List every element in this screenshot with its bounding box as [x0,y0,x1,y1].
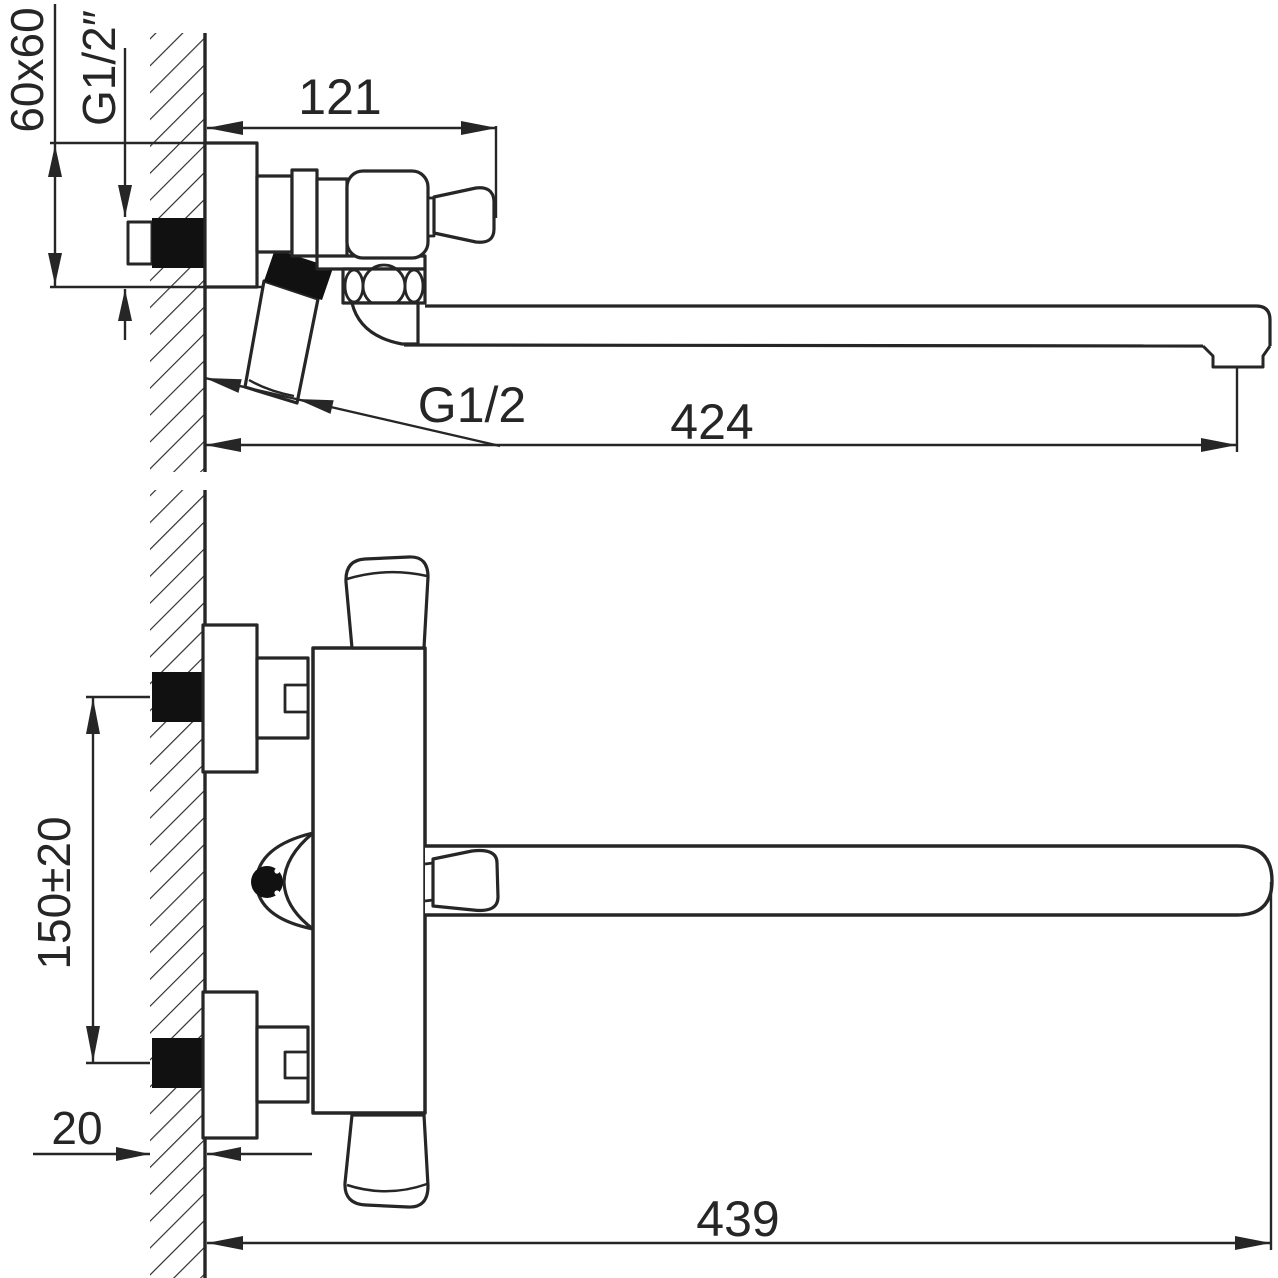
spout-front [425,846,1272,915]
lever-handle-side [434,188,494,242]
faucet-body-front [313,648,425,1113]
shower-outlet-front-inner [284,833,313,929]
front-view [33,490,1272,1278]
connector-stub-upper [285,685,308,712]
dim-label-spout-reach: 424 [642,397,782,447]
spout-joint [352,303,418,344]
spout-aerator [1203,346,1270,367]
dim-label-overall-length: 439 [668,1194,808,1244]
dim-label-inlet-thread: G1/2″ [73,0,125,143]
spout-bottom-edge [404,345,1203,346]
eccentric-fitting-lower [152,1038,203,1088]
dim-label-wall-thickness: 20 [22,1102,132,1150]
flange-lower [203,992,257,1138]
highlight-dot-1 [274,868,279,873]
handle-top [346,557,428,648]
dim-label-wall-to-handle: 121 [270,72,410,122]
front-view-arrowheads [86,698,1271,1250]
body-nut [292,170,317,256]
dim-label-inlet-spacing: 150±20 [28,768,80,1018]
flange-upper [203,625,257,772]
wall-plate [205,143,257,287]
connector-stub-lower [285,1052,308,1078]
inlet-pipe-stub [128,222,152,264]
cartridge-cap [347,171,428,258]
front-view-dimensions [33,697,1271,1250]
lever-knob-front [433,851,498,911]
highlight-dot-2 [274,890,279,895]
dim-label-plate-size: 60x60 [1,0,53,145]
spout-nut [343,269,425,303]
wall-hatch-bottom [150,490,205,1278]
handle-bottom [345,1115,428,1207]
drawing-canvas [0,0,1278,1278]
spout-top-edge [425,306,1270,346]
dim-label-shower-thread: G1/2 [402,380,542,432]
faucet-technical-drawing: 60x60 G1/2″ 121 G1/2 424 150±20 20 439 [0,0,1278,1278]
eccentric-fitting-side [152,218,205,268]
eccentric-fitting-upper [152,672,203,722]
body-neck [317,179,347,258]
body-connector [257,176,292,252]
